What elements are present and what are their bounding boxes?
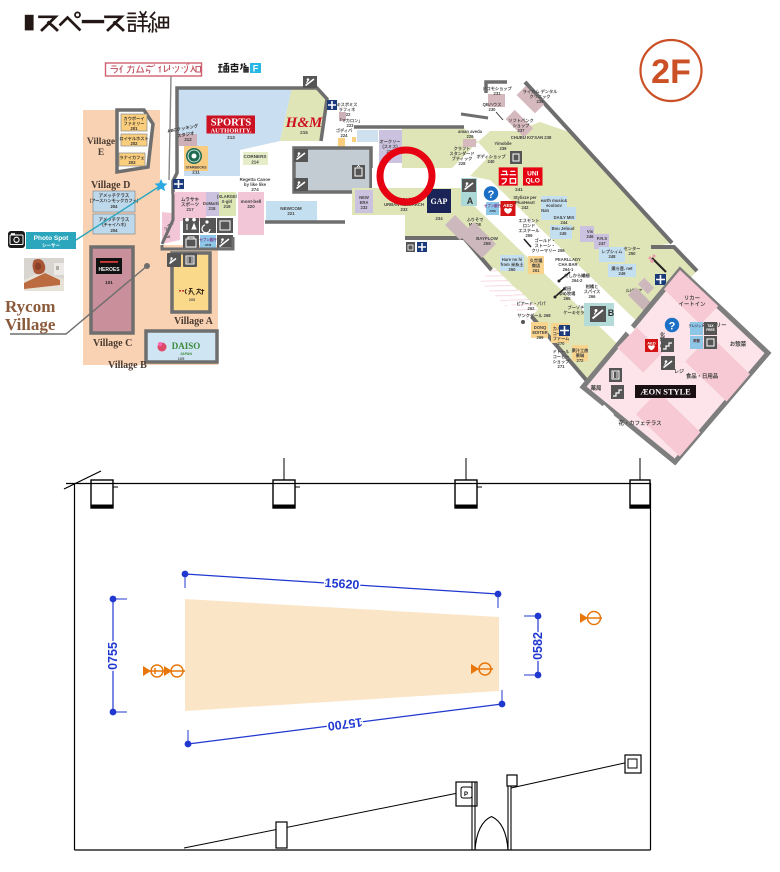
svg-text:235: 235 <box>537 99 545 104</box>
svg-text:214: 214 <box>251 160 259 165</box>
svg-text:232: 232 <box>361 205 369 210</box>
svg-text:(チャイハネ): (チャイハネ) <box>102 221 126 228</box>
svg-text:クレジット: クレジット <box>689 323 705 328</box>
svg-text:271: 271 <box>558 364 566 369</box>
svg-text:248: 248 <box>609 254 617 259</box>
svg-text:ATM: ATM <box>489 209 496 213</box>
svg-text:A: A <box>467 196 474 206</box>
svg-text:215: 215 <box>300 130 308 135</box>
svg-text:241: 241 <box>515 187 523 192</box>
svg-text:サンクゼール 268: サンクゼール 268 <box>517 312 551 319</box>
svg-text:266: 266 <box>589 294 597 299</box>
svg-text:105: 105 <box>178 356 185 361</box>
svg-text:(アースハンモックカフェ): (アースハンモックカフェ) <box>90 197 139 204</box>
svg-text:249: 249 <box>619 271 627 276</box>
svg-text:261: 261 <box>533 268 541 273</box>
svg-text:101: 101 <box>105 280 113 285</box>
svg-text:DAISO: DAISO <box>172 341 201 351</box>
svg-text:AED: AED <box>647 341 656 346</box>
svg-text:212: 212 <box>184 137 192 142</box>
svg-text:220: 220 <box>247 204 255 209</box>
svg-text:Photo Spot: Photo Spot <box>34 235 69 242</box>
svg-text:260: 260 <box>509 267 517 272</box>
svg-text:259: 259 <box>526 233 534 238</box>
svg-text:237: 237 <box>518 128 526 133</box>
svg-text:219: 219 <box>224 204 232 209</box>
svg-text:245: 245 <box>560 231 568 236</box>
svg-text:ÆON STYLE: ÆON STYLE <box>640 388 691 397</box>
svg-text:UNI: UNI <box>527 171 539 178</box>
svg-text:202: 202 <box>131 141 139 146</box>
svg-text:セブン銀行: セブン銀行 <box>484 203 502 208</box>
svg-text:クリーマリー 256: クリーマリー 256 <box>531 247 565 254</box>
svg-text:P: P <box>464 792 468 798</box>
svg-text:HEROES: HEROES <box>98 267 120 273</box>
svg-text:242: 242 <box>522 205 530 210</box>
svg-text:203: 203 <box>129 160 137 165</box>
svg-text:250: 250 <box>629 251 637 256</box>
svg-text:Village C: Village C <box>93 338 132 349</box>
svg-text:240: 240 <box>488 159 496 164</box>
svg-text:213: 213 <box>227 135 235 140</box>
svg-text:211: 211 <box>192 170 200 175</box>
svg-text:204: 204 <box>111 228 119 233</box>
svg-text:224: 224 <box>341 133 349 138</box>
svg-text:233: 233 <box>401 207 409 212</box>
svg-text:Village D: Village D <box>91 180 130 191</box>
svg-text:?: ? <box>669 321 676 333</box>
svg-text:Village B: Village B <box>108 360 147 371</box>
svg-text:274: 274 <box>251 187 259 192</box>
svg-text:270: 270 <box>558 341 566 346</box>
svg-text:お惣菜: お惣菜 <box>730 340 747 348</box>
svg-text:230: 230 <box>489 107 497 112</box>
svg-text:Village A: Village A <box>174 316 214 327</box>
svg-text:272: 272 <box>577 358 585 363</box>
svg-text:Village: Village <box>87 137 115 147</box>
svg-text:258: 258 <box>483 241 491 246</box>
svg-text:0755: 0755 <box>106 642 120 670</box>
svg-text:205: 205 <box>189 298 195 302</box>
svg-text:246: 246 <box>587 234 595 239</box>
svg-text:217: 217 <box>186 207 194 212</box>
svg-text:B: B <box>608 308 615 318</box>
svg-text:15620: 15620 <box>324 576 360 592</box>
svg-text:GAP: GAP <box>431 197 448 206</box>
svg-text:0582: 0582 <box>531 632 545 660</box>
svg-text:231: 231 <box>494 91 502 96</box>
svg-text:H&M: H&M <box>285 115 323 131</box>
svg-text:FREE: FREE <box>706 328 715 332</box>
svg-text:AUTHORITY.: AUTHORITY. <box>210 128 251 135</box>
svg-text:レジ: レジ <box>674 369 684 375</box>
svg-text:234: 234 <box>435 216 443 221</box>
svg-text:265: 265 <box>564 296 572 301</box>
svg-text:セブン銀行: セブン銀行 <box>200 237 218 242</box>
svg-text:CORNERS: CORNERS <box>244 154 267 159</box>
svg-text:264-1: 264-1 <box>563 267 574 272</box>
svg-text:CHUBU KO'SAN 238: CHUBU KO'SAN 238 <box>511 135 552 140</box>
svg-text:?: ? <box>488 189 495 201</box>
svg-text:228: 228 <box>459 161 467 166</box>
svg-text:薬局: 薬局 <box>590 384 602 392</box>
svg-text:218: 218 <box>209 206 217 211</box>
svg-text:269: 269 <box>537 335 545 340</box>
svg-text:食品・日用品: 食品・日用品 <box>686 372 719 380</box>
svg-text:262: 262 <box>528 306 536 311</box>
svg-text:229: 229 <box>467 134 475 139</box>
svg-text:ATM: ATM <box>205 243 212 247</box>
svg-text:247: 247 <box>599 241 607 246</box>
svg-text:両替: 両替 <box>693 338 700 343</box>
svg-text:264-2: 264-2 <box>572 278 583 283</box>
svg-text:E: E <box>98 148 104 158</box>
svg-text:201: 201 <box>131 126 139 131</box>
svg-text:イートイン: イートイン <box>679 301 707 308</box>
svg-text:F: F <box>253 64 259 74</box>
svg-text:リカー: リカー <box>684 295 700 302</box>
svg-text:204: 204 <box>111 204 119 209</box>
svg-text:221: 221 <box>287 211 295 216</box>
svg-text:AED: AED <box>503 203 513 208</box>
svg-text:Village: Village <box>5 315 56 334</box>
svg-text:QLO: QLO <box>526 178 540 185</box>
svg-text:Rycom: Rycom <box>5 297 55 316</box>
svg-text:244: 244 <box>561 220 569 225</box>
svg-text:花・カフェテラス: 花・カフェテラス <box>618 419 661 427</box>
svg-text:2F: 2F <box>651 53 691 91</box>
svg-text:239: 239 <box>500 146 508 151</box>
